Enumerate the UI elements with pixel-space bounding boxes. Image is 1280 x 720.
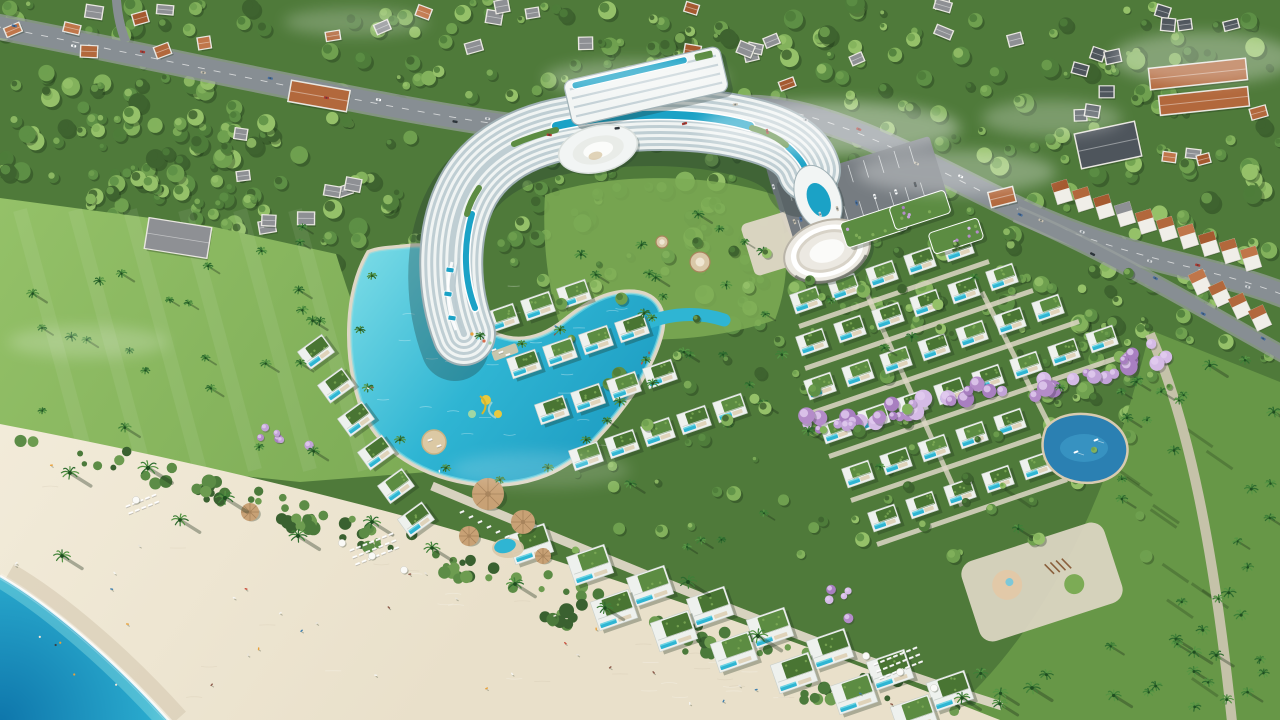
pond xyxy=(1043,414,1128,483)
scene-canvas: beachfront resort complex with curved ho… xyxy=(0,0,1280,720)
aerial-resort-render: beachfront resort complex with curved ho… xyxy=(0,0,1280,720)
